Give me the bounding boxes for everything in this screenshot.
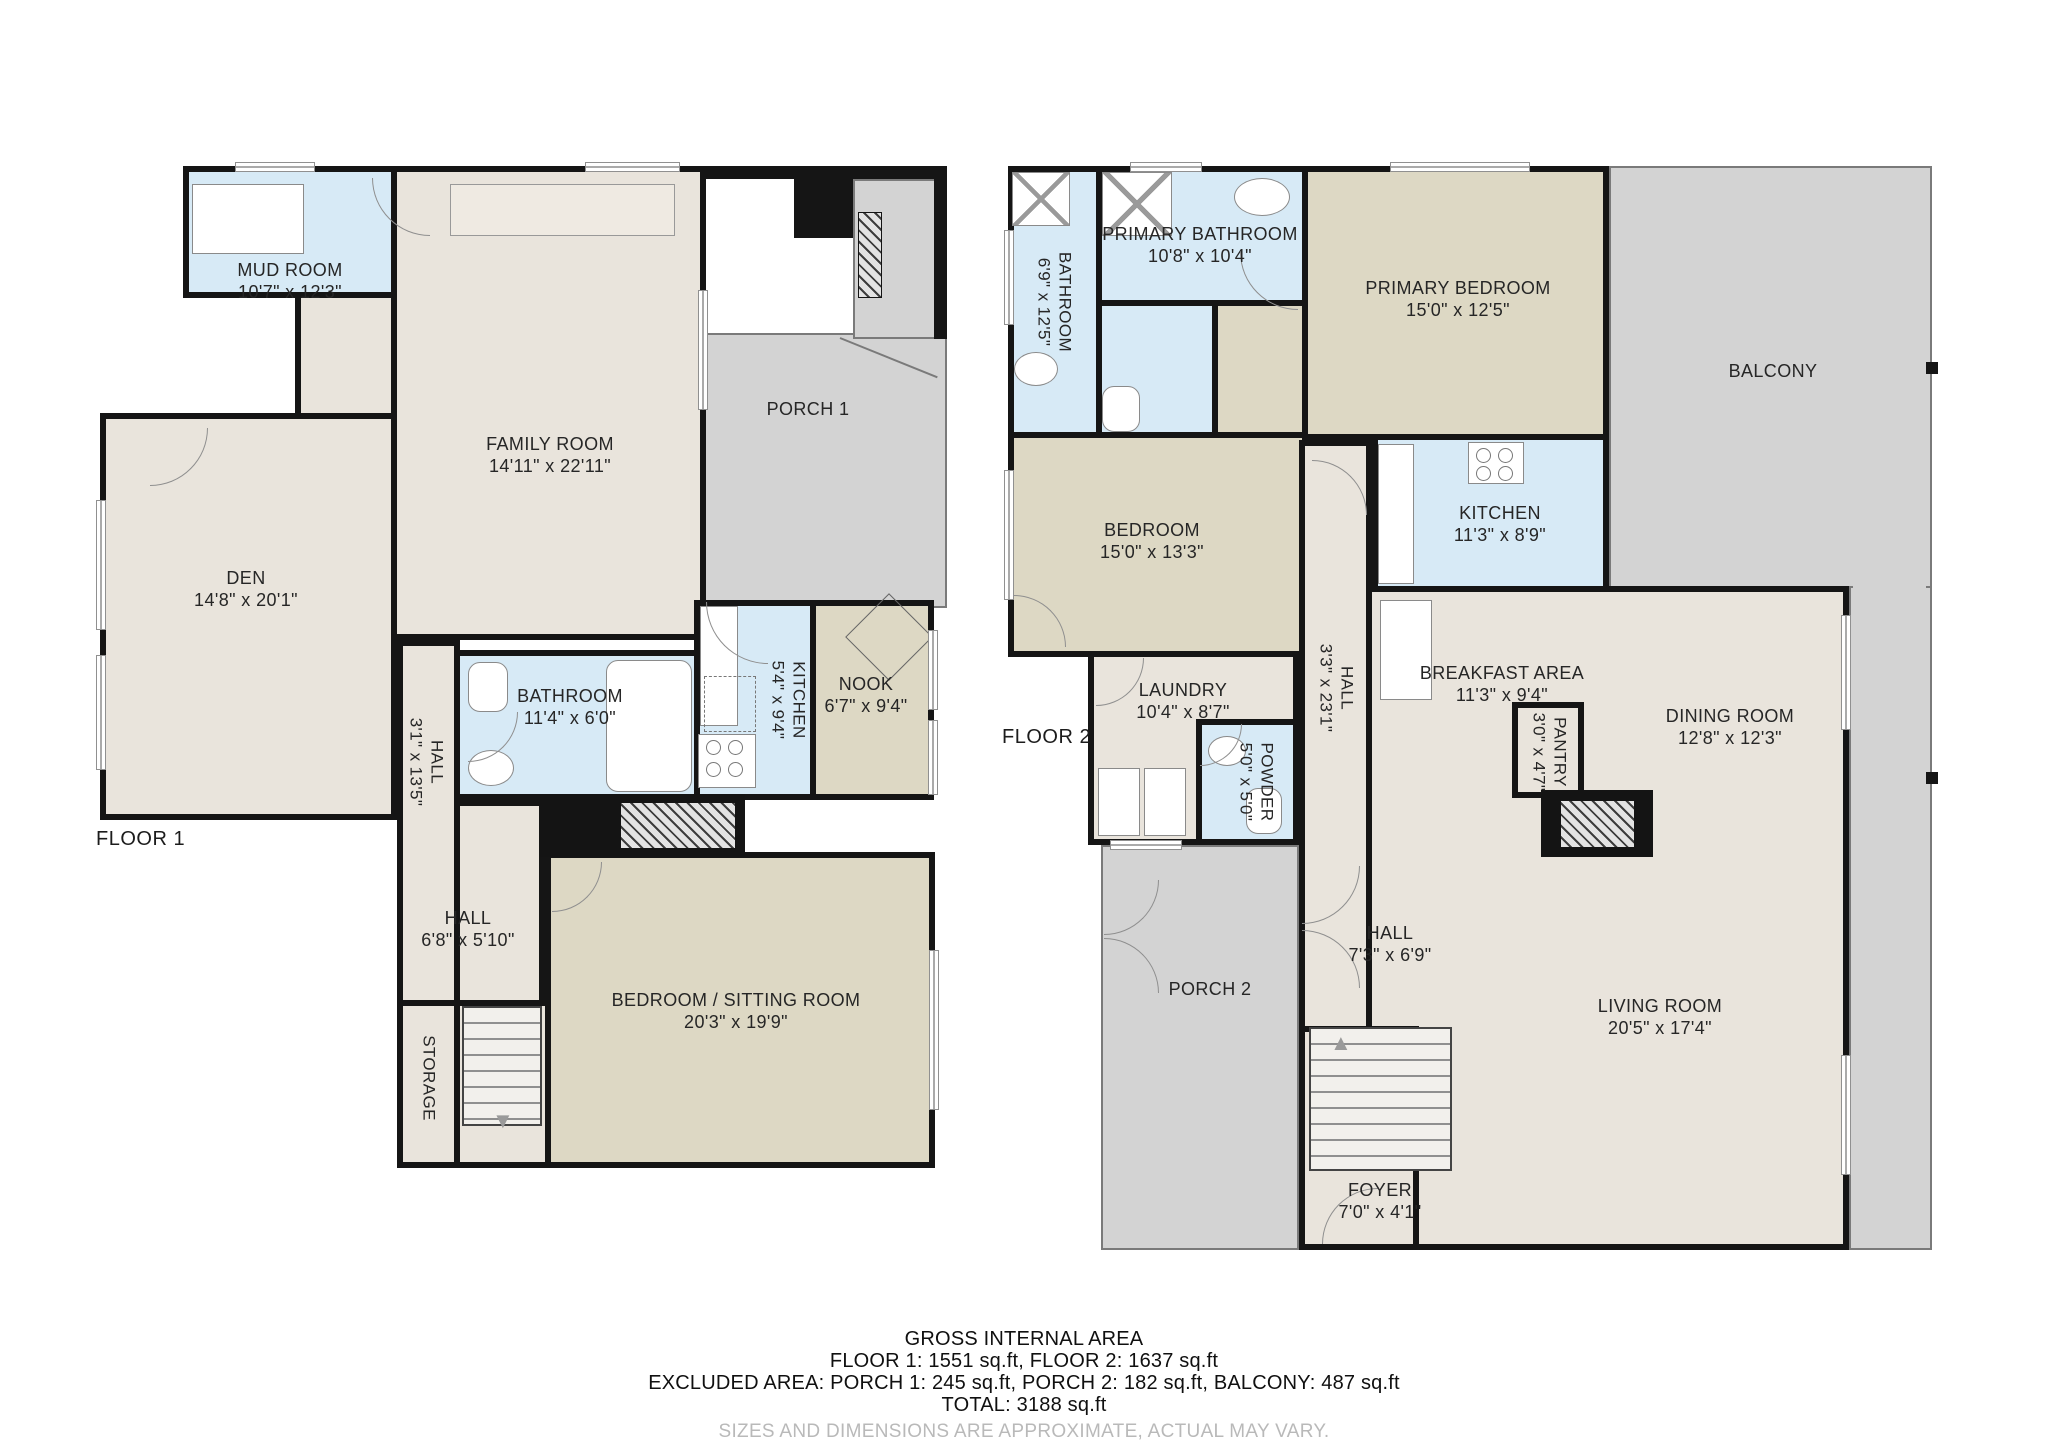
room-label-mud-room: MUD ROOM 10'7" x 12'3" bbox=[237, 260, 342, 304]
total-area-line: TOTAL: 3188 sq.ft bbox=[0, 1394, 2048, 1416]
window bbox=[1841, 1055, 1851, 1175]
room-label-foyer: FOYER 7'0" x 4'1" bbox=[1338, 1180, 1421, 1224]
room-label-hall-2: HALL 6'8" x 5'10" bbox=[421, 908, 515, 952]
wall-segment bbox=[934, 166, 947, 339]
floor-areas-line: FLOOR 1: 1551 sq.ft, FLOOR 2: 1637 sq.ft bbox=[0, 1350, 2048, 1372]
room-label-hall-entry: HALL 7'3" x 6'9" bbox=[1348, 923, 1431, 967]
window bbox=[1390, 162, 1530, 172]
room-label-breakfast-area: BREAKFAST AREA 11'3" x 9'4" bbox=[1420, 663, 1584, 707]
room-label-porch-2: PORCH 2 bbox=[1169, 979, 1252, 1001]
window bbox=[1130, 162, 1202, 172]
sink-symbol bbox=[1014, 352, 1058, 386]
room-label-bathroom-1: BATHROOM 11'4" x 6'0" bbox=[517, 686, 623, 730]
room-area-family-room bbox=[391, 166, 706, 640]
burner-icon bbox=[1498, 466, 1513, 481]
burner-icon bbox=[1476, 466, 1491, 481]
window bbox=[96, 655, 106, 770]
counter-symbol bbox=[1378, 444, 1414, 584]
room-label-bedroom-2: BEDROOM 15'0" x 13'3" bbox=[1100, 520, 1204, 564]
window bbox=[928, 720, 938, 795]
window bbox=[235, 162, 315, 172]
stairs-up-arrow-icon: ▲ bbox=[1330, 1030, 1352, 1056]
washer-symbol bbox=[1098, 768, 1140, 836]
room-label-bathroom-2: BATHROOM 6'9" x 12'5" bbox=[1033, 252, 1074, 352]
room-label-primary-bedroom: PRIMARY BEDROOM 15'0" x 12'5" bbox=[1365, 278, 1550, 322]
balcony-tick bbox=[1926, 362, 1938, 374]
burner-icon bbox=[728, 740, 743, 755]
balcony-tick bbox=[1926, 772, 1938, 784]
burner-icon bbox=[1498, 448, 1513, 463]
burner-icon bbox=[706, 740, 721, 755]
toilet-symbol bbox=[468, 662, 508, 712]
burner-icon bbox=[706, 762, 721, 777]
entry-steps bbox=[858, 212, 882, 298]
room-area-porch-1 bbox=[700, 333, 947, 608]
cabinet-symbol bbox=[450, 184, 675, 236]
window bbox=[1110, 840, 1182, 850]
room-label-nook: NOOK 6'7" x 9'4" bbox=[824, 674, 907, 718]
room-area-hall-2 bbox=[454, 800, 545, 1006]
fireplace-hatch bbox=[1560, 800, 1635, 848]
window bbox=[1004, 230, 1014, 325]
room-label-dining-room: DINING ROOM 12'8" x 12'3" bbox=[1666, 706, 1794, 750]
floor-2-label: FLOOR 2 bbox=[1002, 726, 1091, 749]
disclaimer-text: SIZES AND DIMENSIONS ARE APPROXIMATE, AC… bbox=[0, 1421, 2048, 1443]
window bbox=[1004, 470, 1014, 600]
counter-symbol bbox=[704, 676, 756, 732]
closet-area bbox=[1212, 300, 1308, 438]
window bbox=[928, 630, 938, 710]
room-label-primary-bathroom: PRIMARY BATHROOM 10'8" x 10'4" bbox=[1102, 224, 1297, 268]
room-label-kitchen-1: KITCHEN 5'4" x 9'4" bbox=[767, 661, 808, 740]
stairs-down-arrow-icon: ▼ bbox=[492, 1108, 514, 1134]
balcony-corner-patch bbox=[1853, 586, 1926, 596]
room-label-hall-main: HALL 3'3" x 23'1" bbox=[1315, 644, 1356, 733]
wall-segment bbox=[794, 169, 853, 238]
dryer-symbol bbox=[1144, 768, 1186, 836]
room-label-family-room: FAMILY ROOM 14'11" x 22'11" bbox=[486, 434, 614, 478]
room-label-porch-1: PORCH 1 bbox=[767, 399, 850, 421]
room-label-kitchen-2: KITCHEN 11'3" x 8'9" bbox=[1454, 503, 1546, 547]
footer-summary: GROSS INTERNAL AREA FLOOR 1: 1551 sq.ft,… bbox=[0, 1328, 2048, 1443]
room-label-hall-1: HALL 3'1" x 13'5" bbox=[405, 718, 446, 807]
window bbox=[1841, 615, 1851, 730]
room-label-storage: STORAGE bbox=[418, 1035, 439, 1121]
gross-internal-area-title: GROSS INTERNAL AREA bbox=[0, 1328, 2048, 1350]
room-label-pantry: PANTRY 3'0" x 4'7" bbox=[1528, 713, 1569, 792]
room-area-den bbox=[100, 413, 397, 820]
excluded-areas-line: EXCLUDED AREA: PORCH 1: 245 sq.ft, PORCH… bbox=[0, 1372, 2048, 1394]
room-label-bedroom-sitting: BEDROOM / SITTING ROOM 20'3" x 19'9" bbox=[612, 990, 861, 1034]
sink-symbol bbox=[1234, 178, 1290, 216]
window bbox=[698, 290, 708, 410]
balcony-side-strip bbox=[1849, 586, 1932, 1250]
window bbox=[96, 500, 106, 630]
shower-symbol bbox=[1012, 172, 1070, 226]
window bbox=[929, 950, 939, 1110]
washer-symbol bbox=[192, 184, 304, 254]
room-label-balcony: BALCONY bbox=[1729, 361, 1818, 383]
room-label-laundry: LAUNDRY 10'4" x 8'7" bbox=[1136, 680, 1230, 724]
room-label-den: DEN 14'8" x 20'1" bbox=[194, 568, 298, 612]
toilet-symbol bbox=[1102, 386, 1140, 432]
corridor-area bbox=[295, 292, 397, 419]
window bbox=[585, 162, 680, 172]
floor-plan-canvas: ▼ MUD ROOM 10'7" x 12'3" FAMILY ROOM 14'… bbox=[0, 0, 2048, 1448]
fireplace-hatch bbox=[620, 802, 736, 849]
burner-icon bbox=[1476, 448, 1491, 463]
burner-icon bbox=[728, 762, 743, 777]
floor-1-label: FLOOR 1 bbox=[96, 828, 185, 851]
room-label-powder: POWDER 5'0" x 5'0" bbox=[1235, 743, 1276, 822]
room-label-living-room: LIVING ROOM 20'5" x 17'4" bbox=[1598, 996, 1722, 1040]
